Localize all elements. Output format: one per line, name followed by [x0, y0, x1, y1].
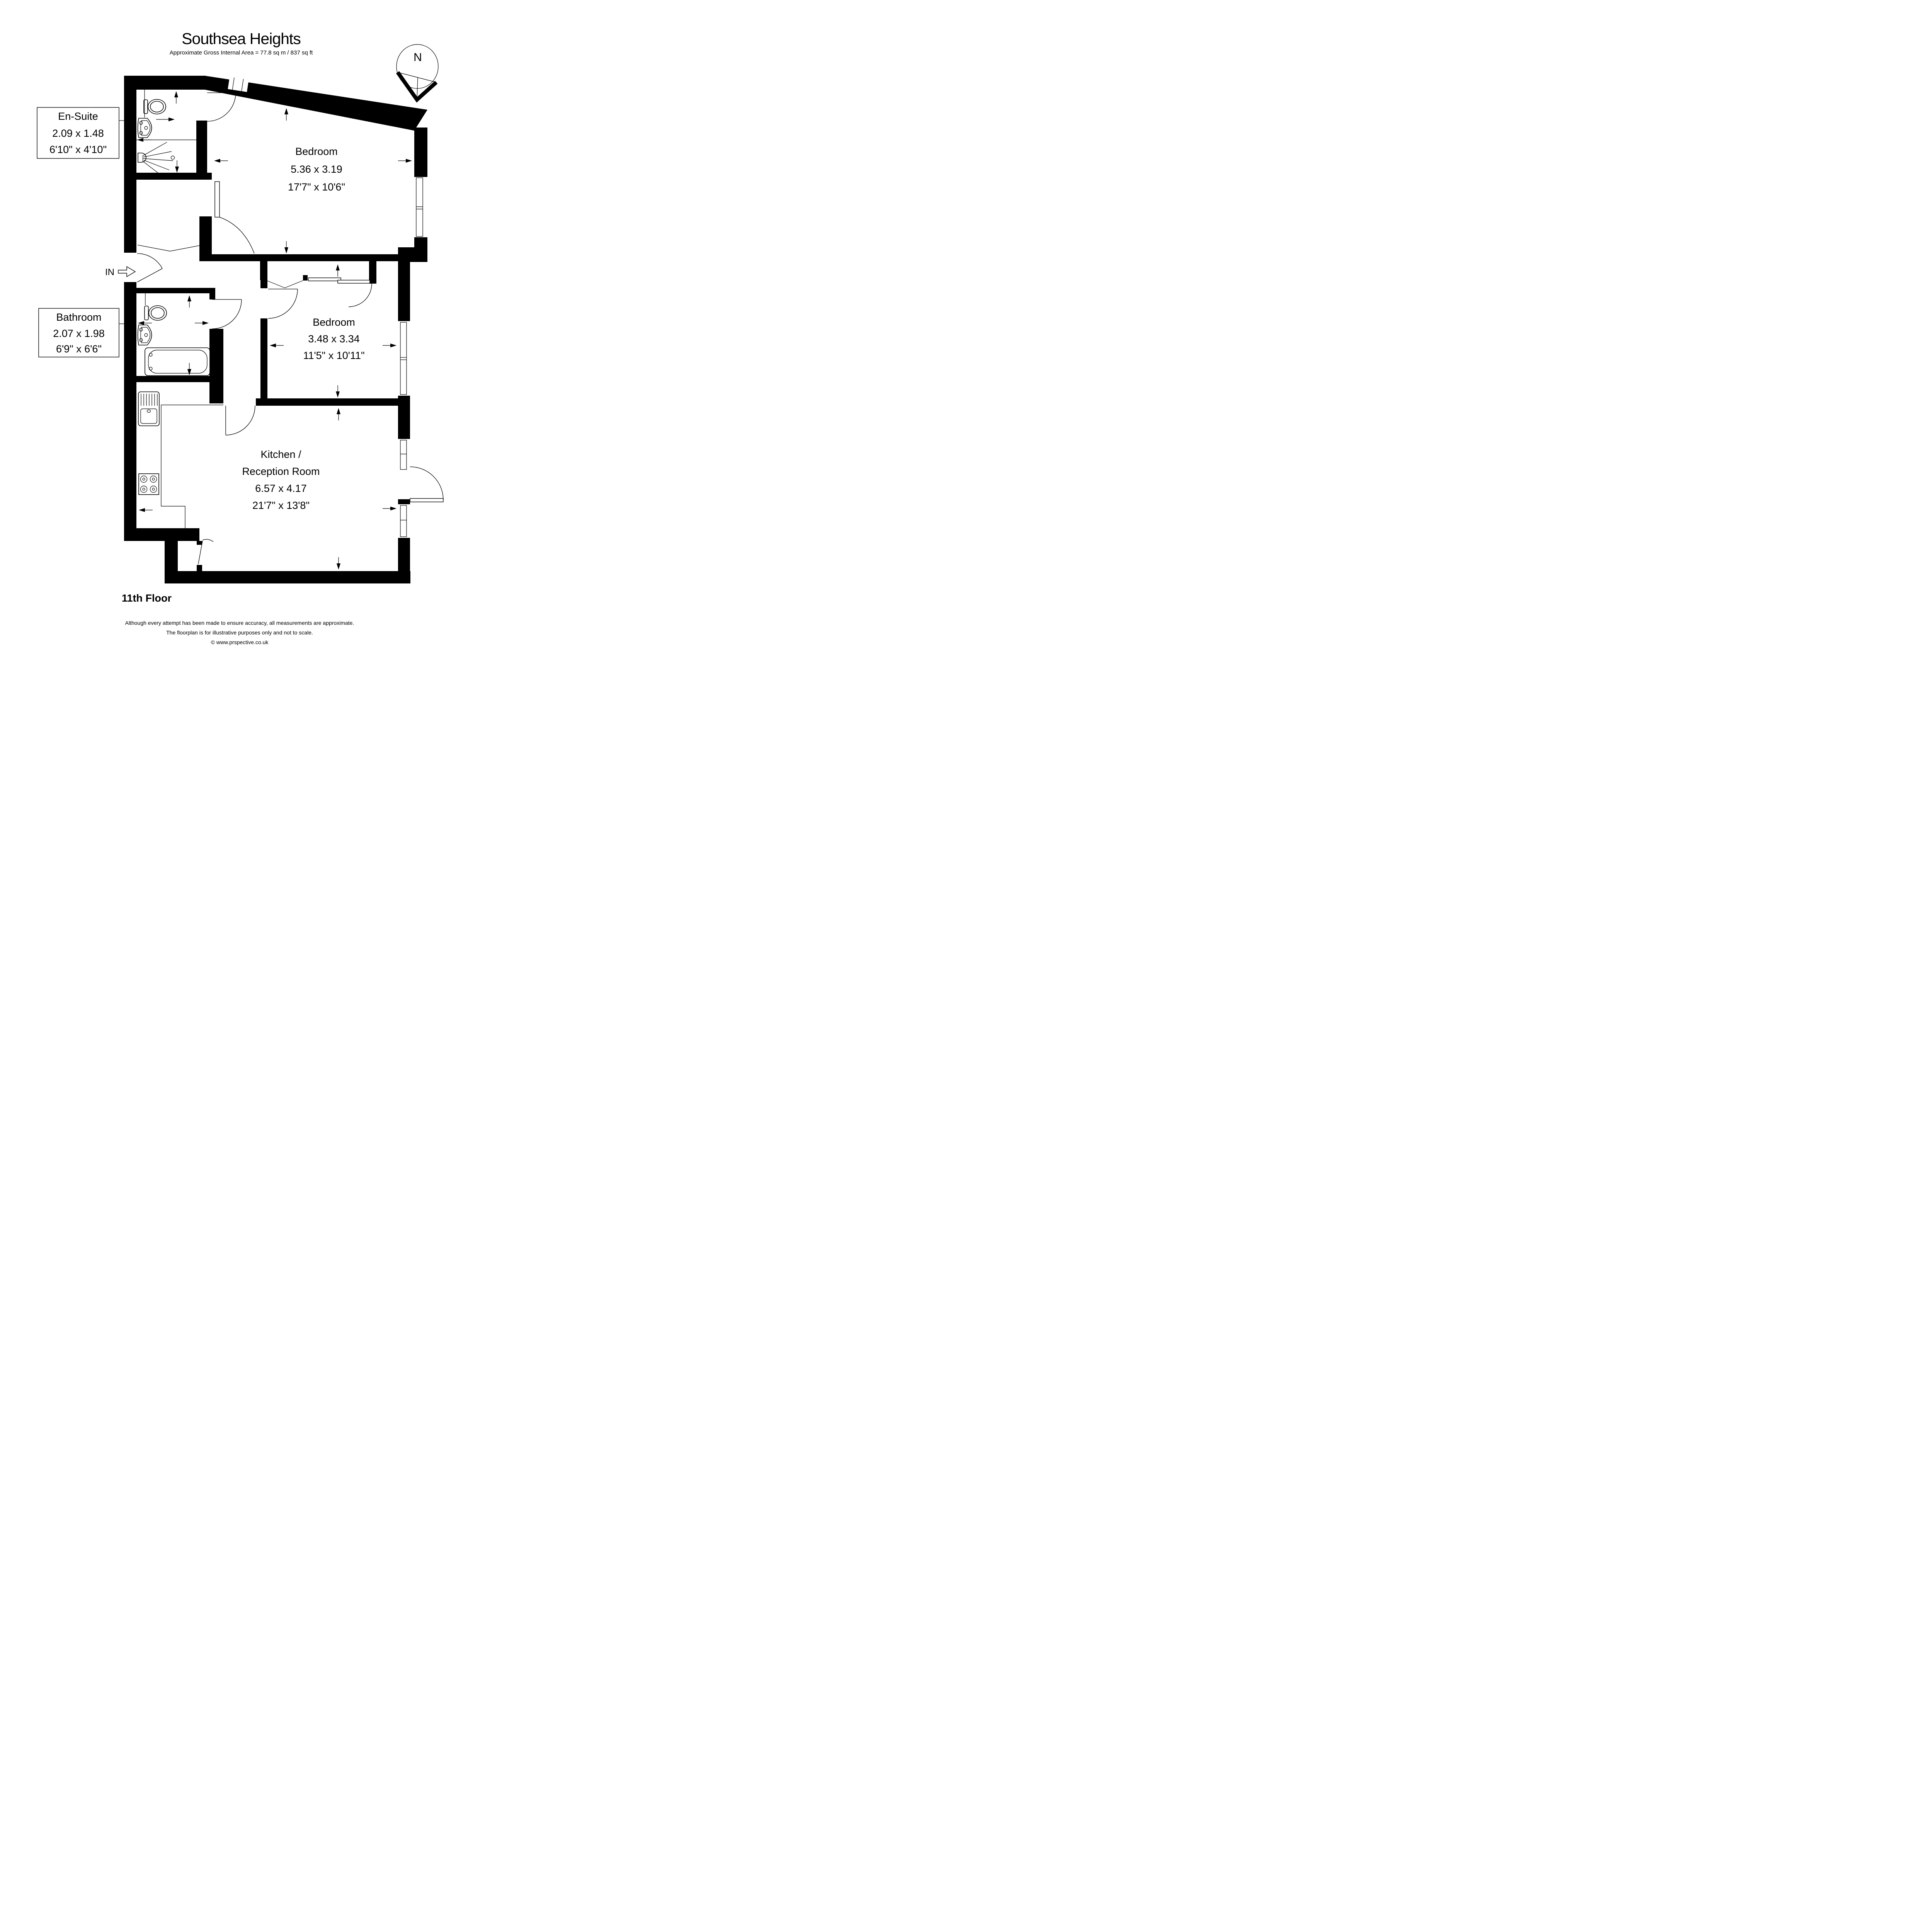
kitchen-hob	[139, 474, 159, 495]
floor-label: 11th Floor	[122, 592, 172, 604]
kitchen-name-line2: Reception Room	[242, 466, 320, 477]
closet-bifold-doors	[138, 245, 202, 251]
ensuite-imperial: 6'10" x 4'10"	[49, 144, 107, 155]
bathroom-metric: 2.07 x 1.98	[53, 328, 105, 339]
kitchen-door	[226, 406, 255, 435]
kitchen-metric: 6.57 x 4.17	[255, 483, 307, 494]
kitchen-counter-line	[161, 405, 223, 534]
compass-north-label: N	[413, 51, 422, 64]
bedroom2-label: Bedroom 3.48 x 3.34 11'5" x 10'11"	[303, 316, 364, 361]
wardrobe-sliding-doors	[308, 278, 370, 283]
bedroom2-closet-door	[349, 284, 372, 307]
ensuite-metric: 2.09 x 1.48	[52, 128, 104, 139]
kitchen-label: Kitchen / Reception Room 6.57 x 4.17 21'…	[242, 449, 320, 511]
bathtub	[145, 348, 210, 376]
bedroom1-name: Bedroom	[295, 146, 338, 157]
bedroom1-metric: 5.36 x 3.19	[291, 163, 342, 175]
disclaimer-line1: Although every attempt has been made to …	[125, 620, 354, 626]
kitchen-window-lower	[397, 504, 411, 538]
bedroom1-label: Bedroom 5.36 x 3.19 17'7" x 10'6"	[288, 146, 345, 193]
hall-closet-bifold-doors	[267, 281, 303, 288]
bathroom-door	[212, 299, 242, 329]
entrance: IN	[105, 267, 135, 277]
floorplan-canvas: Southsea Heights Approximate Gross Inter…	[0, 0, 479, 678]
kitchen-window-upper	[397, 439, 411, 471]
bedroom2-door	[268, 289, 298, 318]
bathroom-label-box: Bathroom 2.07 x 1.98 6'9" x 6'6"	[39, 308, 125, 357]
bathroom-name: Bathroom	[56, 311, 101, 323]
bedroom2-name: Bedroom	[313, 316, 355, 328]
footer: 11th Floor Although every attempt has be…	[122, 592, 354, 645]
bedroom1-window	[413, 177, 427, 237]
ensuite-name: En-Suite	[58, 111, 98, 122]
entry-arrow-icon	[118, 267, 135, 277]
bedroom1-door	[215, 182, 254, 253]
ensuite-shower	[138, 142, 175, 176]
ensuite-toilet	[144, 99, 166, 114]
ensuite-door	[207, 93, 236, 121]
entry-door	[137, 253, 162, 282]
balcony-door	[410, 467, 443, 502]
kitchen-imperial: 21'7" x 13'8"	[252, 500, 310, 511]
page-title: Southsea Heights	[182, 30, 301, 48]
bedroom1-imperial: 17'7" x 10'6"	[288, 181, 345, 193]
kitchen-sink	[138, 392, 159, 426]
disclaimer-line2: The floorplan is for illustrative purpos…	[166, 629, 313, 636]
ensuite-basin	[138, 118, 152, 138]
bathroom-toilet	[145, 306, 167, 320]
fixtures	[136, 90, 223, 534]
dimension-arrows	[137, 91, 412, 570]
bedroom2-window	[397, 321, 411, 396]
bedroom2-imperial: 11'5" x 10'11"	[303, 350, 364, 361]
ensuite-label-box: En-Suite 2.09 x 1.48 6'10" x 4'10"	[37, 107, 125, 158]
kitchen-name-line1: Kitchen /	[260, 449, 301, 460]
bedroom2-metric: 3.48 x 3.34	[308, 333, 360, 345]
floorplan-page: Southsea Heights Approximate Gross Inter…	[0, 0, 479, 678]
page-subtitle: Approximate Gross Internal Area = 77.8 s…	[170, 49, 313, 56]
entrance-label: IN	[105, 267, 114, 277]
bathroom-basin	[138, 325, 152, 345]
compass-icon: N	[396, 44, 438, 100]
copyright: © www.prspective.co.uk	[211, 639, 269, 645]
bathroom-imperial: 6'9" x 6'6"	[56, 343, 102, 355]
